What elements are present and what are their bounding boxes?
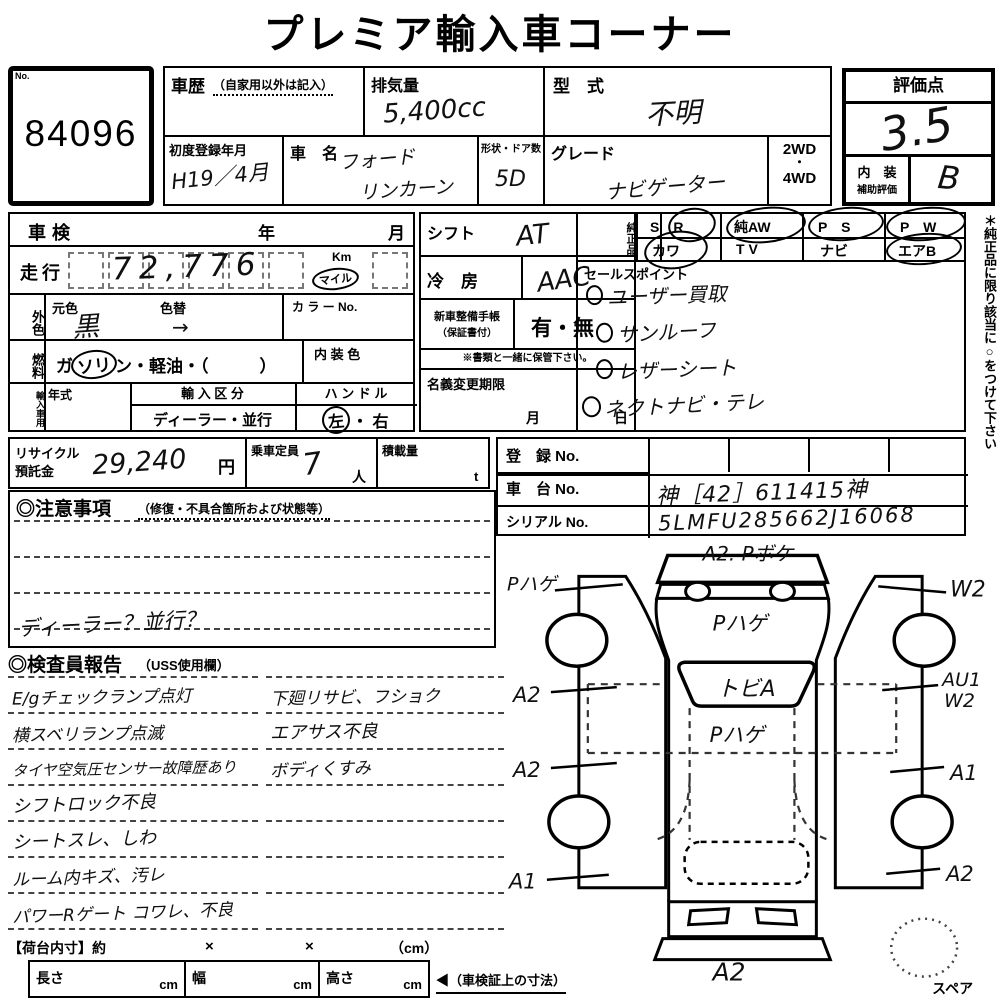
- service-book-label: 新車整備手帳: [421, 308, 513, 324]
- damage-note-bottom: A2: [711, 958, 746, 987]
- width-label: 幅: [192, 968, 206, 988]
- sales-item-text: サンルーフ: [617, 318, 717, 347]
- dotted-line: [8, 928, 258, 930]
- model-value: 不明: [644, 91, 702, 134]
- model-cell: 型 式 不明: [543, 66, 832, 137]
- ext-color-row: 外色 元色 黒 色替 → カ ラ ー No.: [8, 293, 415, 341]
- grade-cell: グレード ナビゲーター: [543, 135, 769, 206]
- dotted-line: [8, 676, 258, 678]
- attention-note: ディーラー？並行？: [17, 603, 206, 643]
- dotted-line: [266, 928, 504, 930]
- skirt: [655, 939, 831, 960]
- import-row: 輸入車用 年式 輸 入 区 分 ディーラー・並行 ハ ン ド ル 左 ・ 右: [8, 382, 415, 432]
- damage-note-right-3: A2: [944, 862, 974, 886]
- damage-note-windshield: トビA: [717, 677, 776, 702]
- year-type-cell: 年式: [44, 384, 132, 430]
- car-name-line1: フォード: [338, 142, 416, 176]
- shaken-label: 車検: [28, 219, 76, 245]
- attention-header: ◎注意事項: [16, 494, 111, 521]
- fuel-label: 燃料: [10, 341, 46, 386]
- interior-label-cell: 内 装 補助評価: [846, 157, 911, 202]
- mileage-digit-box: [268, 252, 304, 289]
- model-label: 型 式: [553, 72, 604, 97]
- handle-dot: ・: [352, 414, 368, 431]
- ac-label: 冷 房: [427, 267, 478, 292]
- capacity-cell: 乗車定員 7 人: [245, 437, 378, 489]
- reg-no-label: 登 録 No.: [506, 445, 579, 466]
- serial-label: シリアル No.: [506, 512, 588, 532]
- light: [686, 582, 710, 600]
- handle-cell: ハ ン ド ル 左 ・ 右: [295, 384, 417, 430]
- interior-label-2: 補助評価: [846, 181, 908, 196]
- grid-divider: [720, 214, 722, 262]
- fuel-value: ガソリン・軽油・（ ）: [56, 352, 277, 377]
- transfer-label: 名義変更期限: [427, 374, 505, 393]
- damage-note-left-2: A2: [511, 758, 541, 782]
- sales-item: サンルーフ: [595, 314, 716, 349]
- recycle-label1: リサイクル: [15, 443, 79, 462]
- sales-item-text: ユーザー買取: [607, 282, 727, 310]
- car-name-cell: 車 名 フォード リンカーン: [282, 135, 479, 206]
- ext-color-label: 外色: [10, 295, 46, 345]
- height-unit: cm: [403, 977, 422, 992]
- interior-value: B: [936, 158, 962, 198]
- capacity-label: 乗車定員: [251, 442, 299, 459]
- height-cell: 高さ cm: [318, 960, 430, 998]
- dimension-arrow-note: ◀（車検証上の寸法）: [436, 970, 566, 994]
- color-no-label: カ ラ ー No.: [292, 298, 357, 315]
- transfer-month: 月: [526, 408, 540, 428]
- genuine-side-note: ＊純正品に限り該当に○をつけて下さい: [970, 214, 996, 574]
- car-diagram: A2. Pボケ Pハゲ W2 Pハゲ トビA Pハゲ A2 A2 A1 AU1 …: [505, 540, 997, 1000]
- dotted-line: [8, 856, 258, 858]
- mileage-mile: マイル: [311, 266, 360, 293]
- year-type-label: 年式: [48, 386, 72, 403]
- mileage-label: 走行: [20, 259, 64, 285]
- shaken-row: 車検 年 月: [8, 212, 415, 247]
- shape-label: 形状・ドア数: [481, 140, 541, 155]
- grade-label: グレード: [551, 140, 615, 164]
- score-value: 3.5: [876, 96, 957, 162]
- hand-circle-bullet: [581, 396, 601, 418]
- page-title: プレミア輸入車コーナー: [0, 2, 1000, 60]
- width-cell: 幅 cm: [184, 960, 320, 998]
- length-label: 長さ: [36, 968, 64, 988]
- bed-label: 【荷台内寸】約: [8, 938, 106, 958]
- damage-note-roof: Pハゲ: [710, 723, 768, 747]
- dotted-line: [8, 784, 258, 786]
- inspector-note-left: E/gチェックランプ点灯: [12, 681, 192, 709]
- dotted-line: [266, 820, 504, 822]
- sales-item: ネクトナビ・テレ: [581, 385, 764, 423]
- wheel: [894, 614, 954, 666]
- dotted-line: [14, 556, 490, 558]
- first-reg-label: 初度登録年月: [169, 140, 247, 159]
- displacement-cell: 排気量 5,400cc: [363, 66, 545, 137]
- dotted-line: [14, 592, 490, 594]
- service-book-sub: （保証書付）: [421, 324, 513, 339]
- int-color-cell: 内 装 色: [302, 341, 419, 382]
- dotted-line: [8, 748, 258, 750]
- dotted-line: [266, 712, 504, 714]
- damage-note-left-3: A1: [507, 870, 537, 894]
- handle-right: 右: [372, 414, 388, 431]
- dotted-line: [266, 748, 504, 750]
- inspector-sub: （USS使用欄）: [138, 655, 230, 674]
- handle-value: 左 ・ 右: [295, 408, 417, 432]
- dotted-line: [266, 676, 504, 678]
- damage-note-hood: Pハゲ: [713, 611, 771, 635]
- registration-table: 登 録 No. 車 台 No. 神［42］611415神 シリアル No. 5L…: [496, 437, 966, 536]
- inspector-note-left: 横スベリランプ点滅: [12, 719, 164, 747]
- handle-left-circled: 左: [320, 405, 351, 436]
- load-label: 積載量: [382, 442, 418, 459]
- light: [689, 909, 729, 925]
- drive-4wd: 4WD: [769, 170, 830, 187]
- attention-box: ◎注意事項 （修復・不具合箇所および状態等） ディーラー？並行？: [8, 490, 496, 648]
- wheel: [892, 796, 952, 848]
- reg-divider: [728, 439, 730, 472]
- bed-x1: ×: [205, 938, 214, 955]
- dotted-line: [266, 892, 504, 894]
- height-label: 高さ: [326, 968, 354, 988]
- spare-tire-circle: [891, 919, 957, 977]
- service-book-label-cell: 新車整備手帳 （保証書付）: [421, 300, 515, 348]
- interior-label-1: 内 装: [846, 162, 908, 181]
- reg-no-label-cell: 登 録 No.: [498, 439, 650, 474]
- shape-cell: 形状・ドア数 5D: [477, 135, 545, 206]
- sales-item-text: レザーシート: [617, 356, 737, 384]
- serial-label-cell: シリアル No.: [498, 505, 650, 538]
- import-class-value: ディーラー・並行: [130, 409, 295, 430]
- inspector-note-left: シートスレ、しわ: [12, 823, 157, 854]
- chassis-label: 車 台 No.: [506, 478, 579, 499]
- mileage-digit-box: [68, 252, 104, 289]
- fuel-circled: ソリ: [70, 348, 119, 382]
- mileage-value: 72,776: [111, 246, 263, 287]
- shaken-year: 年: [258, 219, 275, 244]
- displacement-value: 5,400cc: [382, 92, 487, 129]
- sales-item-text: ネクトナビ・テレ: [604, 389, 765, 421]
- recycle-cell: リサイクル 預託金 29,240 円: [8, 437, 247, 489]
- inspector-section: ◎検査員報告 （USS使用欄） E/gチェックランプ点灯 下廻リサビ、フショク …: [8, 650, 504, 936]
- mileage-km: Km: [332, 250, 351, 264]
- recycle-label2: 預託金: [15, 461, 54, 480]
- repaint-arrow: →: [172, 315, 189, 339]
- interior-score-row: 内 装 補助評価 B: [846, 154, 991, 202]
- damage-note-right-1a: AU1: [940, 669, 981, 691]
- inspector-note-left: ルーム内キズ、汚レ: [12, 860, 165, 890]
- attention-sub: （修復・不具合箇所および状態等）: [138, 500, 330, 520]
- reg-divider: [888, 439, 890, 472]
- grade-value: ナビゲーター: [604, 166, 726, 205]
- sales-points-box: セールスポイント ユーザー買取 サンルーフ レザーシート ネクトナビ・テレ: [576, 260, 966, 432]
- car-name-line2: リンカーン: [358, 172, 454, 205]
- score-box: 評価点 3.5 内 装 補助評価 B: [842, 68, 995, 206]
- lot-number: 84096: [13, 113, 149, 155]
- inspector-note-right: ボディくすみ: [270, 753, 372, 782]
- dotted-line: [266, 784, 504, 786]
- damage-note-right-top: W2: [950, 577, 986, 602]
- import-label: 輸入車用: [10, 384, 46, 432]
- bed-cm-note: （cm）: [390, 938, 438, 958]
- body-right-edge: [816, 598, 829, 901]
- damage-note-left-top: Pハゲ: [507, 573, 559, 595]
- fuel-row: 燃料 ガソリン・軽油・（ ） 内 装 色: [8, 339, 415, 384]
- inspector-note-left: タイヤ空気圧センサー故障歴あり: [12, 756, 237, 781]
- damage-note-right-1b: W2: [944, 690, 975, 712]
- dotted-line: [266, 856, 504, 858]
- dotted-line: [14, 520, 490, 522]
- int-color-label: 内 装 色: [314, 344, 360, 363]
- mileage-digit-box: [372, 252, 408, 289]
- recycle-value: 29,240: [91, 444, 187, 482]
- genuine-navi: ナビ: [820, 241, 848, 261]
- inspector-note-left: シフトロック不良: [12, 787, 157, 818]
- drive-cell: 2WD ・ 4WD: [767, 135, 832, 206]
- rear-window: [685, 842, 809, 884]
- dotted-line: [8, 892, 258, 894]
- mileage-row: 走行 72,776 Km マイル: [8, 245, 415, 295]
- hand-circle-bullet: [586, 285, 604, 306]
- color-no-cell: カ ラ ー No.: [282, 295, 419, 339]
- capacity-unit: 人: [352, 467, 366, 487]
- inspector-note-left: パワーRゲート コワレ、不良: [12, 895, 234, 928]
- grid-divider: [884, 214, 886, 262]
- shift-label: シフト: [427, 220, 475, 244]
- genuine-grid: 純正品 S R 純AW P S P W カワ T V ナビ エアB: [576, 212, 966, 262]
- history-label: 車歴: [171, 72, 205, 97]
- inspector-header: ◎検査員報告: [8, 650, 122, 677]
- displacement-label: 排気量: [371, 72, 419, 96]
- dotted-line: [8, 712, 258, 714]
- shift-value: AT: [514, 218, 550, 252]
- hand-circle-bullet: [596, 359, 614, 380]
- capacity-value: 7: [301, 446, 325, 483]
- bed-x2: ×: [305, 938, 314, 955]
- width-unit: cm: [293, 977, 312, 992]
- inspector-note-right: 下廻リサビ、フショク: [270, 682, 440, 710]
- first-reg-cell: 初度登録年月 H19／4月: [163, 135, 284, 206]
- light: [770, 582, 794, 600]
- damage-note-right-2: A1: [948, 761, 978, 785]
- inspector-note-right: エアサス不良: [270, 717, 378, 745]
- drive-dot: ・: [769, 158, 830, 166]
- shaken-month: 月: [388, 219, 405, 244]
- import-class-label: 輸 入 区 分: [130, 384, 295, 406]
- chassis-label-cell: 車 台 No.: [498, 472, 650, 507]
- fuel-post: ン・軽油・（ ）: [115, 357, 277, 376]
- bumper-bar: [657, 584, 829, 598]
- light: [756, 909, 796, 925]
- reg-divider: [808, 439, 810, 472]
- hand-circle-bullet: [595, 322, 613, 343]
- damage-note-left-1: A2: [511, 683, 541, 707]
- score-label: 評価点: [846, 72, 991, 104]
- history-cell: 車歴 （自家用以外は記入）: [163, 66, 365, 137]
- load-cell: 積載量 t: [376, 437, 490, 489]
- dotted-line: [8, 820, 258, 822]
- length-cell: 長さ cm: [28, 960, 186, 998]
- history-note: （自家用以外は記入）: [213, 76, 333, 96]
- auction-sheet: プレミア輸入車コーナー No. 84096 車歴 （自家用以外は記入） 排気量 …: [0, 0, 1000, 1000]
- handle-label: ハ ン ド ル: [295, 384, 417, 406]
- import-class-cell: 輸 入 区 分 ディーラー・並行: [130, 384, 297, 430]
- first-reg-value: H19／4月: [170, 156, 270, 196]
- shape-value: 5D: [495, 167, 526, 192]
- wheel: [549, 796, 609, 848]
- lot-box: No. 84096: [8, 66, 154, 206]
- damage-note-top: A2. Pボケ: [701, 541, 796, 565]
- load-unit: t: [474, 469, 478, 484]
- spare-label: スペア: [932, 981, 973, 997]
- recycle-unit: 円: [218, 453, 235, 478]
- wheel: [547, 614, 607, 666]
- car-name-label: 車 名: [290, 140, 338, 164]
- lot-no-label: No.: [15, 71, 30, 81]
- length-unit: cm: [159, 977, 178, 992]
- sales-item: ユーザー買取: [586, 278, 728, 312]
- genuine-label: 純正品: [578, 214, 638, 261]
- sales-item: レザーシート: [596, 352, 738, 386]
